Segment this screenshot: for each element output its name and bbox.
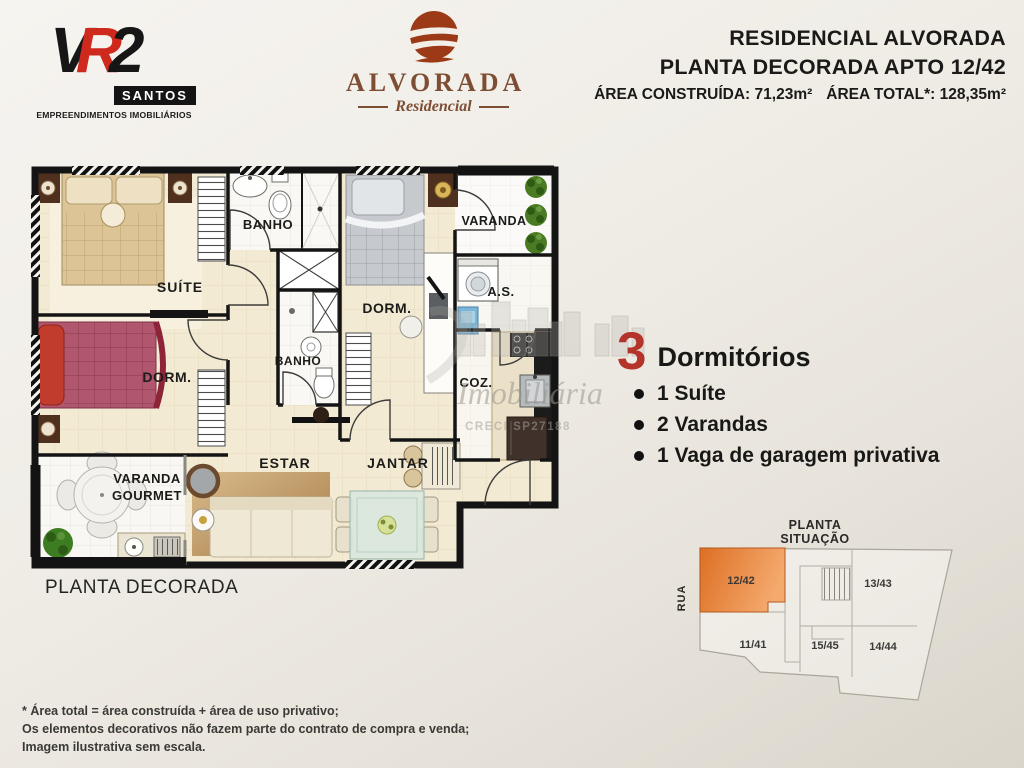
room-label-varanda: VARANDA: [461, 214, 526, 228]
title-line1: RESIDENCIAL ALVORADA: [594, 24, 1006, 53]
floor-plan: SUÍTE DORM. BANHO DORM. VARANDA A.S. COZ…: [30, 165, 565, 570]
gourmet-rail-bottom: [32, 557, 186, 567]
plan-caption: PLANTA DECORADA: [45, 577, 238, 599]
closet: [278, 250, 340, 290]
logo-rule-left: [358, 106, 388, 108]
unit-label: 11/41: [740, 639, 767, 651]
vr2-logo-city: SANTOS: [114, 86, 196, 105]
footnote-line: * Área total = área construída + área de…: [22, 703, 469, 721]
balcony-plants: [525, 176, 547, 254]
room-label-banho-top: BANHO: [243, 217, 293, 232]
unit-label: 13/43: [864, 578, 892, 590]
alvorada-logo-type: Residencial: [346, 98, 521, 116]
kitchen-fixtures: [492, 332, 555, 460]
room-label-coz: COZ.: [459, 375, 492, 390]
desk: [424, 253, 454, 393]
page-title-block: RESIDENCIAL ALVORADA PLANTA DECORADA APT…: [594, 24, 1006, 104]
alvorada-logo: ALVORADA Residencial: [346, 8, 521, 116]
room-label-gourmet-1: VARANDA: [113, 471, 181, 486]
dorm-left-wardrobe: [198, 370, 225, 446]
footnote-line: Os elementos decorativos não fazem parte…: [22, 721, 469, 739]
vr2-logo-letters: VR2: [28, 18, 200, 82]
logo-rule-right: [479, 106, 509, 108]
street-label: RUA: [676, 585, 688, 612]
gourmet-rail-side: [31, 465, 41, 557]
feature-item: 2 Varandas: [657, 413, 939, 437]
features-list: 3 Dormitórios 1 Suíte 2 Varandas 1 Vaga …: [617, 330, 939, 475]
dorm-center-wardrobe: [346, 333, 371, 405]
stairwell: [822, 568, 850, 600]
unit-label: 15/45: [811, 640, 839, 652]
room-label-dorm-center: DORM.: [362, 300, 411, 316]
dorm-count: 3: [617, 330, 646, 373]
feature-item: 1 Vaga de garagem privativa: [657, 444, 939, 468]
room-label-banho-mid: BANHO: [275, 354, 322, 368]
plant: [43, 528, 73, 558]
situation-title-2: SITUAÇÃO: [780, 531, 849, 546]
situation-plan: PLANTA SITUAÇÃO 12/42 13/43 11/41 15/45 …: [672, 514, 1017, 704]
footnotes: * Área total = área construída + área de…: [22, 703, 469, 756]
area-built: ÁREA CONSTRUÍDA: 71,23m²: [594, 86, 812, 103]
room-label-gourmet-2: GOURMET: [112, 488, 182, 503]
feature-item: 1 Suíte: [657, 382, 939, 406]
title-line2: PLANTA DECORADA APTO 12/42: [594, 53, 1006, 82]
area-total: ÁREA TOTAL*: 128,35m²: [826, 86, 1006, 103]
room-label-suite: SUÍTE: [157, 279, 203, 295]
room-label-jantar: JANTAR: [367, 455, 429, 471]
balcony-rail: [458, 166, 554, 176]
title-area-info: ÁREA CONSTRUÍDA: 71,23m²ÁREA TOTAL*: 128…: [594, 86, 1006, 104]
armchair: [188, 466, 218, 496]
situation-title-1: PLANTA: [789, 518, 842, 532]
unit-label: 14/44: [869, 641, 897, 653]
unit-label: 12/42: [727, 575, 755, 587]
fridge: [507, 417, 547, 460]
room-label-estar: ESTAR: [259, 455, 310, 471]
dorm-count-label: Dormitórios: [657, 342, 810, 373]
room-label-as: A.S.: [487, 284, 514, 299]
alvorada-logo-name: ALVORADA: [346, 68, 521, 98]
vr2-logo-tagline: EMPREENDIMENTOS IMOBILIÁRIOS: [28, 110, 200, 120]
vr2-logo: VR2 SANTOS EMPREENDIMENTOS IMOBILIÁRIOS: [28, 18, 200, 120]
sunrise-icon: [399, 8, 469, 66]
room-label-dorm-left: DORM.: [142, 369, 191, 385]
footnote-line: Imagem ilustrativa sem escala.: [22, 739, 469, 757]
suite-wardrobe: [198, 177, 225, 261]
